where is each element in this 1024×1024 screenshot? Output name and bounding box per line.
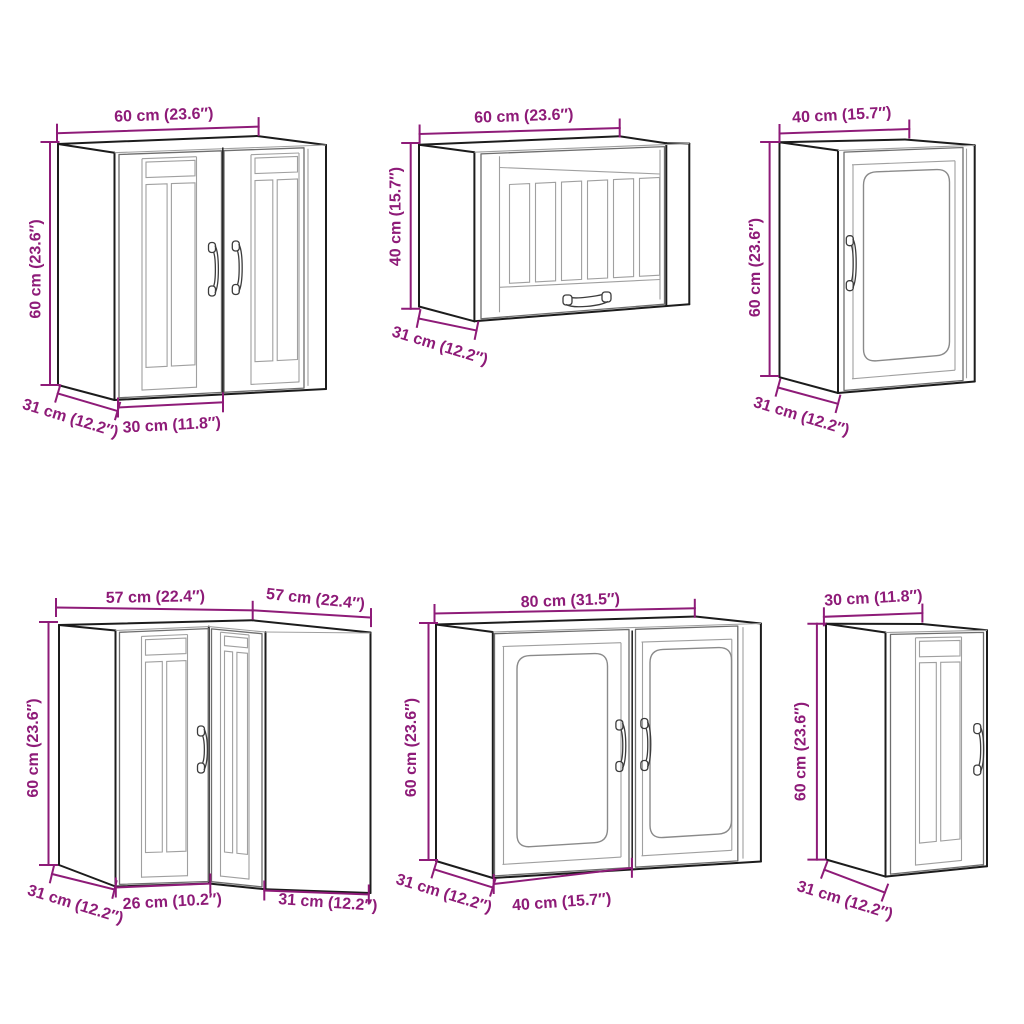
svg-text:60 cm (23.6″): 60 cm (23.6″) (25, 698, 42, 797)
svg-text:57 cm (22.4″): 57 cm (22.4″) (106, 588, 206, 607)
svg-text:60 cm (23.6″): 60 cm (23.6″) (747, 218, 764, 317)
svg-text:80 cm (31.5″): 80 cm (31.5″) (520, 591, 620, 611)
svg-text:60 cm (23.6″): 60 cm (23.6″) (793, 702, 810, 801)
svg-text:60 cm (23.6″): 60 cm (23.6″) (474, 106, 574, 126)
svg-text:40 cm (15.7″): 40 cm (15.7″) (388, 167, 405, 266)
svg-text:60 cm (23.6″): 60 cm (23.6″) (114, 105, 214, 125)
svg-text:60 cm (23.6″): 60 cm (23.6″) (27, 219, 44, 318)
svg-text:60 cm (23.6″): 60 cm (23.6″) (403, 698, 420, 797)
